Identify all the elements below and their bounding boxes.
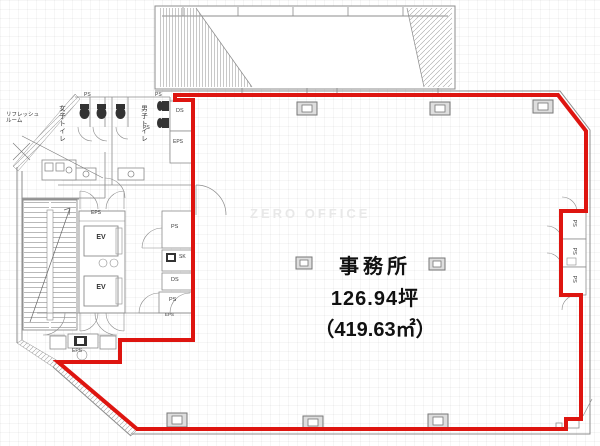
ds-label-top: DS (176, 108, 184, 114)
ps-label-stack-1: PS (171, 224, 178, 230)
ps-label-toilet-3: PS (155, 93, 162, 99)
balcony (155, 6, 455, 93)
staircase (22, 199, 79, 330)
toilet-icons (80, 104, 126, 119)
urinal-icons (157, 101, 169, 128)
ps-label-right-2: PS (571, 245, 577, 257)
ps-label-toilet-2: PS (143, 126, 150, 132)
unit-area-tsubo: 126.94坪 (285, 282, 465, 311)
ps-label-right-1: PS (571, 217, 577, 229)
eps-label-desk-room: EPS (72, 349, 82, 355)
ps-label-toilet-1: PS (84, 93, 91, 99)
ps-label-right-3: PS (571, 273, 577, 285)
womens-toilet-label: 女子トイレ (57, 105, 64, 143)
eps-label-ev: EPS (91, 211, 101, 217)
sk-label: SK (179, 255, 186, 261)
eps-label-top: EPS (173, 140, 183, 146)
corridor-shafts (139, 211, 193, 313)
ds-label-stack: DS (171, 277, 179, 283)
eps-label-stack: EPS (165, 312, 174, 317)
unit-info: 事務所 126.94坪 （419.63㎡） (285, 250, 465, 342)
unit-area-sqm: （419.63㎡） (285, 313, 465, 342)
mens-toilet-label: 男子トイレ (139, 105, 146, 143)
office-entry-door (196, 185, 226, 215)
refresh-room (13, 136, 125, 198)
elevator-block (79, 191, 125, 331)
refresh-room-label-line2: ルーム (6, 118, 39, 124)
plan-linework (0, 0, 600, 446)
ps-label-stack-2: PS (169, 297, 176, 303)
watermark: ZERO OFFICE (250, 206, 370, 221)
refresh-room-label: リフレッシュ ルーム (6, 112, 39, 125)
ev-label-1: EV (92, 234, 110, 242)
unit-name: 事務所 (285, 250, 465, 279)
ev-label-2: EV (92, 284, 110, 292)
floor-plan: ZERO OFFICE 事務所 126.94坪 （419.63㎡） リフレッシュ… (0, 0, 600, 446)
